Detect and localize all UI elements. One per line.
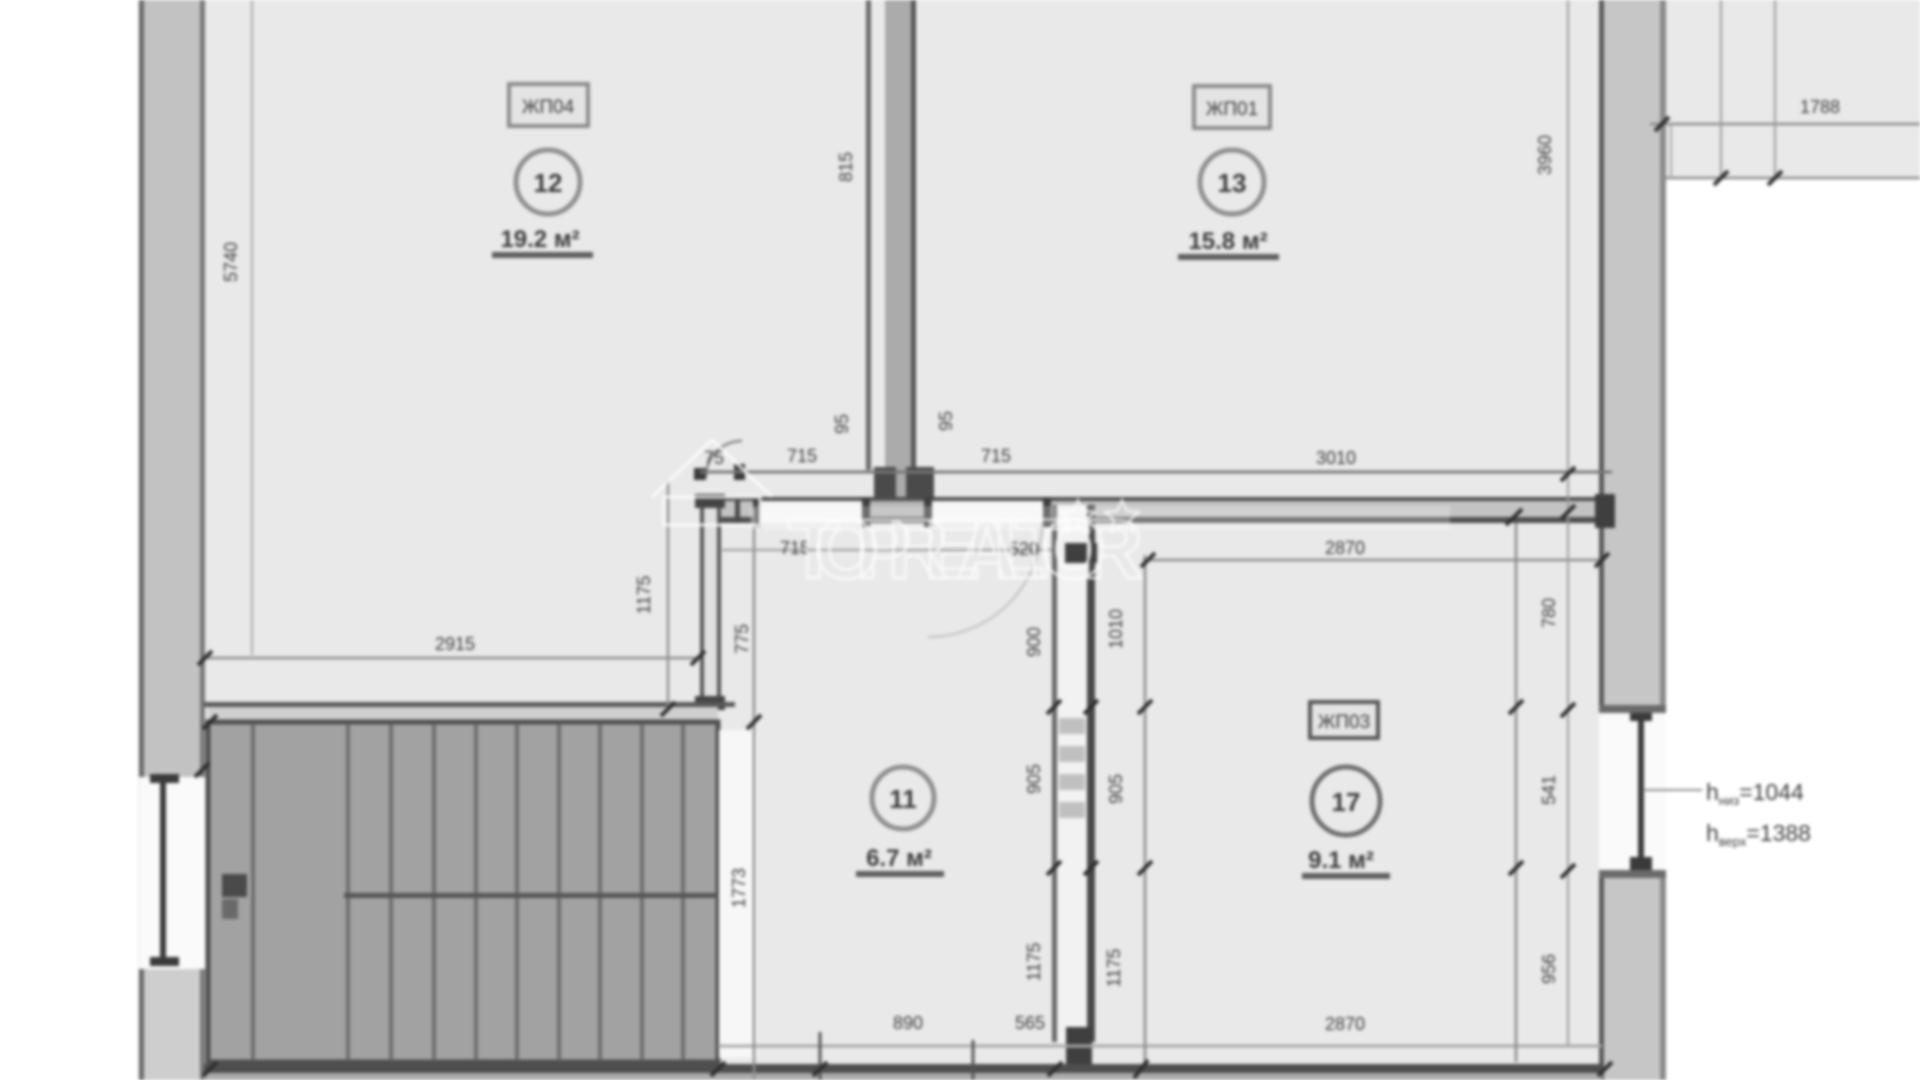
svg-text:2870: 2870: [1325, 1014, 1365, 1034]
svg-text:956: 956: [1539, 954, 1559, 984]
svg-text:12: 12: [534, 168, 563, 198]
svg-text:9.1 м²: 9.1 м²: [1308, 847, 1374, 874]
svg-text:13: 13: [1218, 168, 1247, 198]
svg-text:3010: 3010: [1316, 448, 1356, 468]
svg-text:715: 715: [787, 446, 817, 466]
svg-text:75: 75: [704, 448, 724, 468]
svg-text:890: 890: [893, 1013, 923, 1033]
svg-text:1175: 1175: [634, 576, 654, 615]
svg-text:900: 900: [1024, 627, 1044, 657]
svg-text:2870: 2870: [1325, 538, 1365, 558]
svg-text:1175: 1175: [1024, 943, 1044, 982]
svg-text:780: 780: [1539, 598, 1559, 628]
svg-text:1010: 1010: [1106, 609, 1126, 649]
svg-text:ЖП03: ЖП03: [1318, 712, 1370, 733]
svg-text:715: 715: [981, 446, 1011, 466]
svg-text:905: 905: [1024, 764, 1044, 794]
svg-text:2915: 2915: [435, 634, 475, 654]
svg-text:95: 95: [936, 411, 956, 431]
svg-text:15.8 м²: 15.8 м²: [1188, 228, 1267, 255]
svg-text:3960: 3960: [1535, 135, 1555, 175]
svg-text:775: 775: [732, 624, 752, 654]
svg-text:17: 17: [1332, 787, 1361, 817]
svg-text:95: 95: [832, 414, 852, 434]
svg-text:19.2 м²: 19.2 м²: [500, 226, 579, 253]
svg-text:5740: 5740: [221, 242, 241, 282]
svg-text:565: 565: [1015, 1013, 1045, 1033]
svg-text:815: 815: [836, 152, 856, 182]
svg-text:1773: 1773: [729, 868, 749, 908]
svg-text:905: 905: [1106, 774, 1126, 804]
svg-text:6.7 м²: 6.7 м²: [866, 845, 932, 872]
svg-text:ЖП04: ЖП04: [522, 97, 575, 118]
svg-text:ЖП01: ЖП01: [1206, 99, 1258, 120]
svg-text:541: 541: [1539, 775, 1559, 805]
svg-text:1175: 1175: [1104, 949, 1124, 988]
svg-text:1788: 1788: [1800, 97, 1840, 117]
svg-text:11: 11: [889, 784, 917, 814]
